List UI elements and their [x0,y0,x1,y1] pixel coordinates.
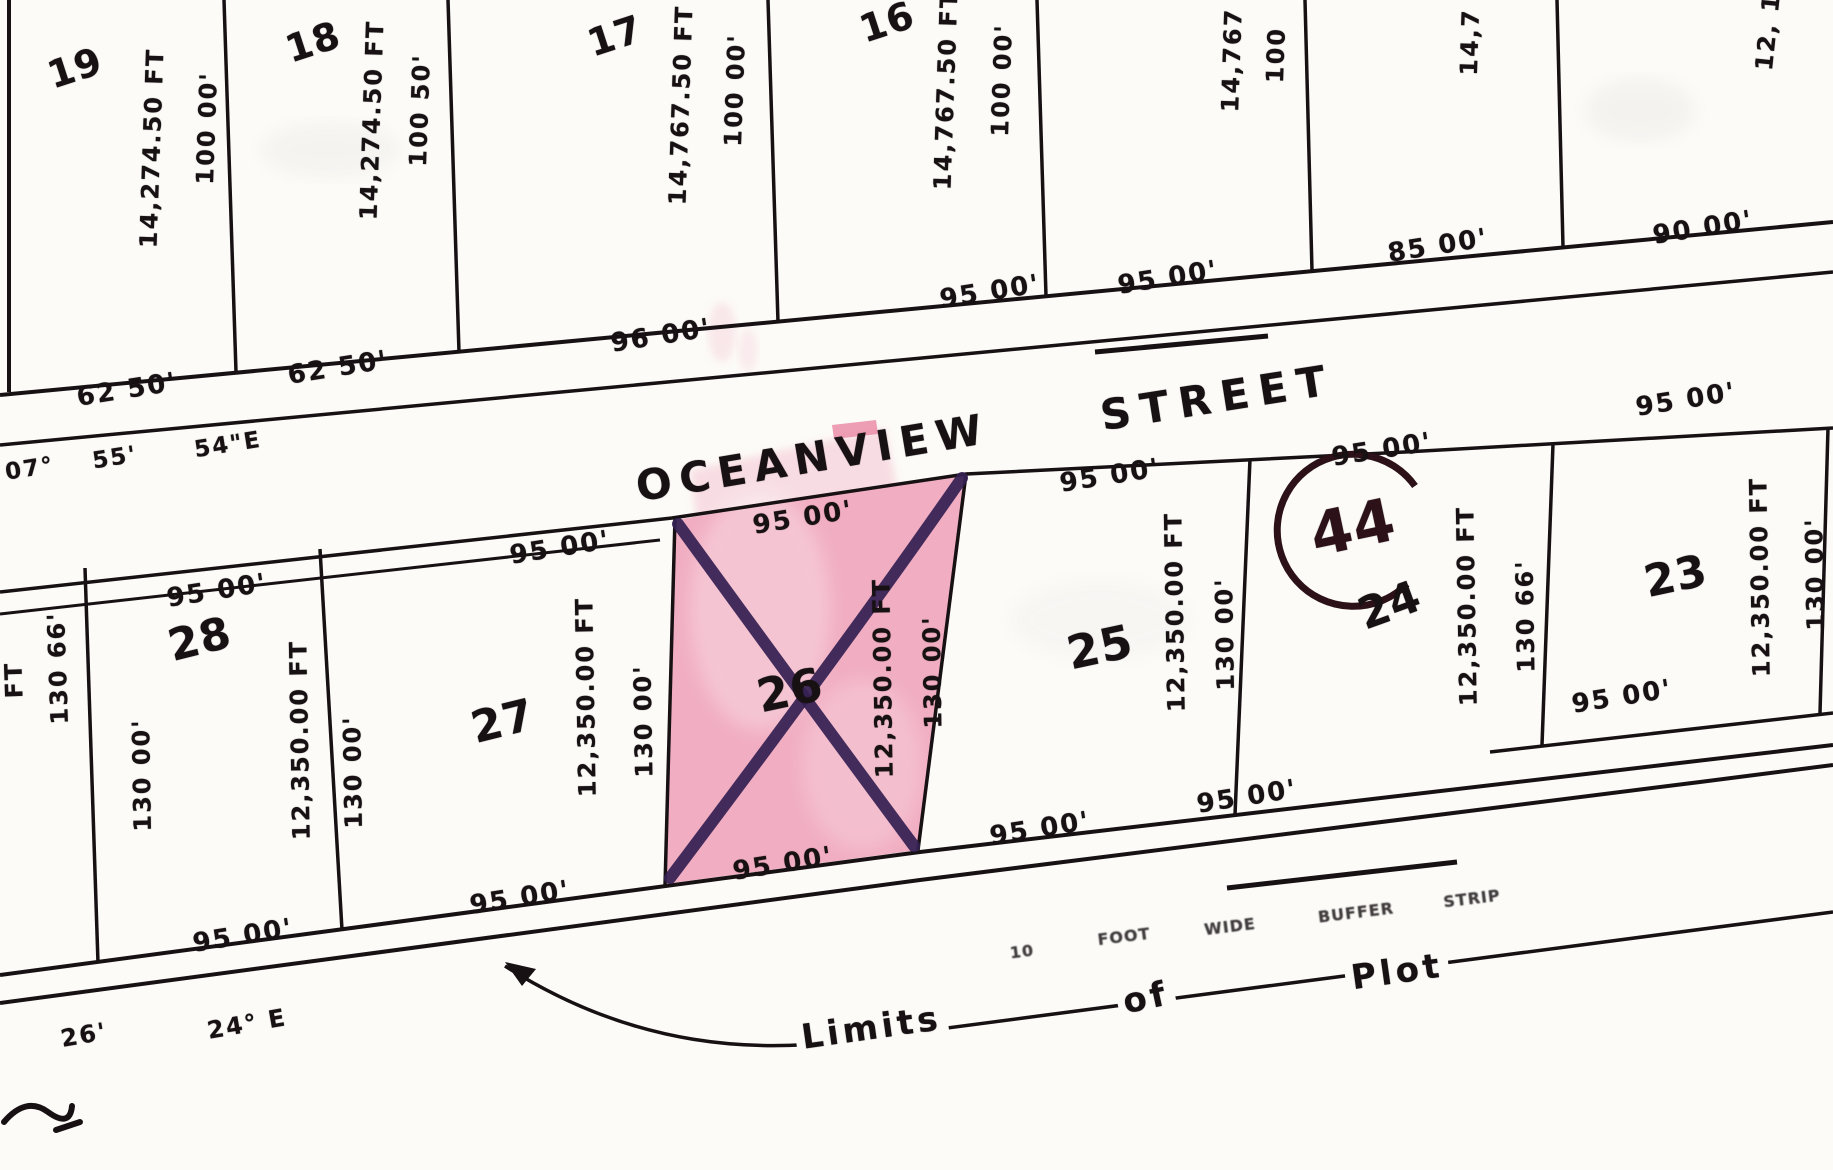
lot-27-area: 12,350.00 FT [572,587,600,807]
divider-lot18-lot17 [448,0,459,352]
paper-smudge [1585,78,1695,142]
divider-lot19-lot18 [224,0,236,372]
lot-24-area: 12,350.00 FT [1453,486,1481,726]
lot-28-depth-right: 130 00' [339,677,366,867]
divider-top-lot6-lot7 [1557,0,1563,247]
pink-streak [738,328,758,372]
lot-25-area: 12,350.00 FT [1161,507,1189,717]
lot-28-area: 12,350.00 FT [286,615,314,865]
top-lot-5-depth: 100 [1262,0,1290,110]
top-lot-6-area: 14,7 [1456,0,1484,97]
corner-scribble [56,1122,80,1130]
divider-lot16-next [1037,0,1046,296]
divider-edge-lot28 [85,568,98,963]
buffer-strip-segment [1227,862,1457,888]
lot-26-depth: 130 00' [919,589,946,754]
divider-lot17-lot16 [768,0,778,322]
lot-23-area: 12,350.00 FT [1746,457,1774,697]
lot-25-depth: 130 00' [1212,554,1239,714]
lot-23-depth: 130 00' [1802,499,1829,649]
edge-lot-fragment: FT [1,650,27,711]
lot-27-depth: 130 00' [630,638,657,803]
plat-map: 19 14,274.50 FT 100 00' 62 50' 18 14,274… [0,0,1833,1170]
lot-28-depth-left: 130 00' [129,695,156,855]
divider-top-lot5-lot6 [1305,0,1312,271]
lot-26-area: 12,350.00 FT [869,563,897,793]
corner-scribble [4,1106,72,1122]
lot-24-depth: 130 66' [1512,538,1539,693]
